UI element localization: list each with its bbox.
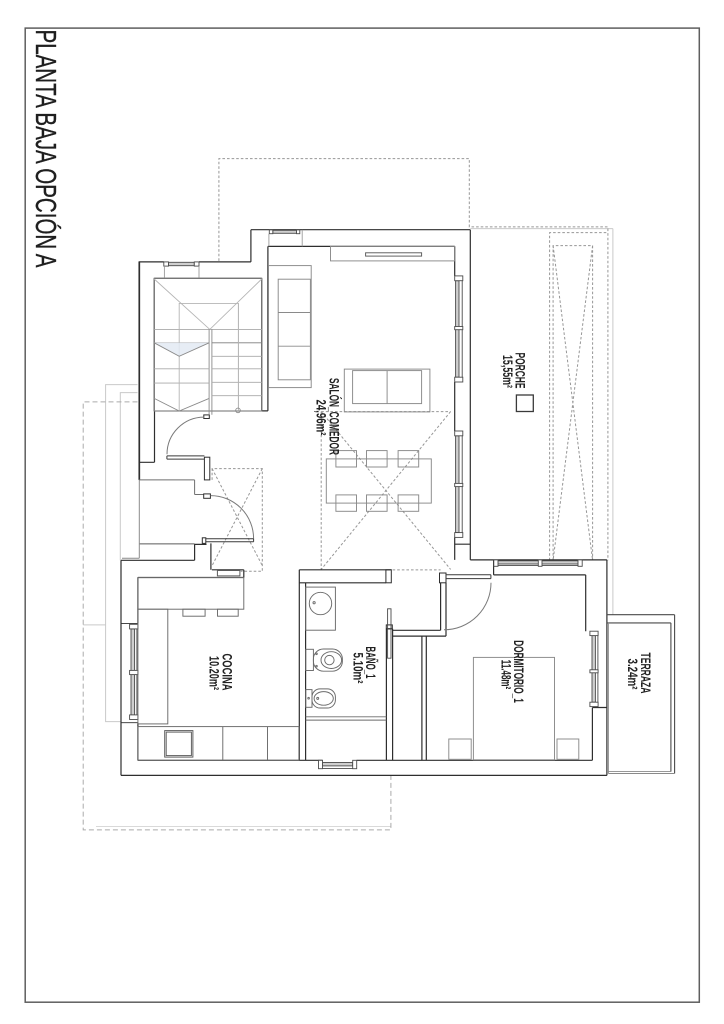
svg-text:5.10m²: 5.10m² — [350, 653, 366, 684]
svg-text:11.48m²: 11.48m² — [498, 660, 514, 690]
svg-text:15,55m²: 15,55m² — [500, 355, 515, 388]
svg-text:24,96m²: 24,96m² — [314, 400, 330, 436]
svg-text:PLANTA BAJA OPCIÓN A: PLANTA BAJA OPCIÓN A — [29, 30, 62, 268]
svg-text:3.24m²: 3.24m² — [625, 659, 641, 690]
svg-text:10.20m²: 10.20m² — [207, 656, 223, 690]
